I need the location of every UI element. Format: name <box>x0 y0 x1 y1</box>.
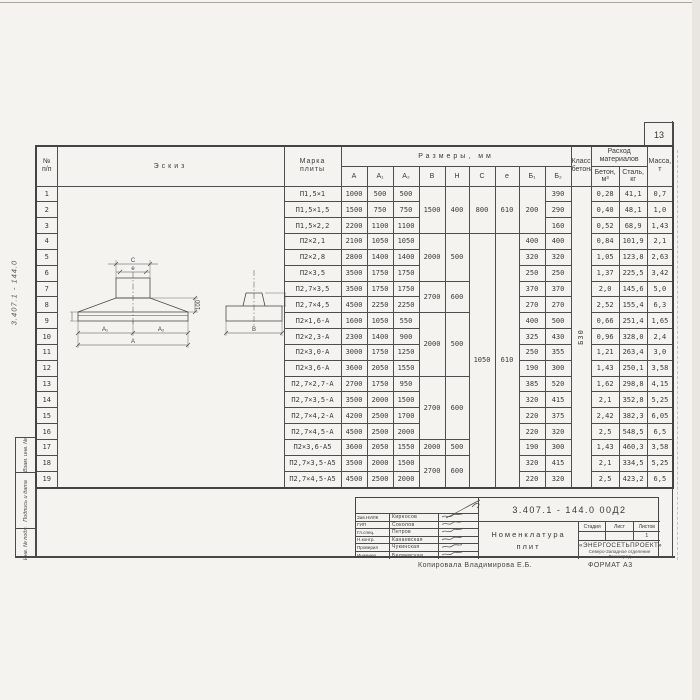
table-cell: 2000 <box>393 424 419 440</box>
table-cell: 500 <box>393 186 419 202</box>
table-cell: 5,0 <box>647 281 673 297</box>
col-header-dims: Размеры, мм <box>341 146 571 166</box>
drawing-sheet: 13 3.407.1 - 144.0 Взам. инв. № Подпись … <box>0 0 700 700</box>
table-cell: 123,8 <box>619 249 647 265</box>
table-cell: 1050 <box>393 234 419 250</box>
table-cell: 2100 <box>341 234 367 250</box>
signer-role: Н.контр. <box>356 537 390 544</box>
col-steel: Сталь, кг <box>619 166 647 186</box>
table-cell: 750 <box>393 202 419 218</box>
table-cell: 2,42 <box>591 408 619 424</box>
table-cell: 1050 <box>367 234 393 250</box>
table-cell: 382,3 <box>619 408 647 424</box>
stage-header-row: Стадия Лист Листов <box>579 522 660 532</box>
table-cell: 3500 <box>341 265 367 281</box>
title-block-right: Стадия Лист Листов 1 «ЭНЕРГОСЕТЬПРОЕКТ» … <box>578 522 660 559</box>
signer-row: Зав.НИЛККирносов <box>356 514 478 522</box>
table-cell: 190 <box>519 440 545 456</box>
table-cell: 18 <box>36 455 57 471</box>
table-cell: 750 <box>367 202 393 218</box>
table-cell: 430 <box>545 329 571 345</box>
table-cell: 1750 <box>367 344 393 360</box>
signature <box>439 529 478 536</box>
table-cell: 2000 <box>367 392 393 408</box>
signature <box>439 544 478 551</box>
col-A1: A₁ <box>367 166 393 186</box>
table-cell: 334,5 <box>619 455 647 471</box>
table-cell: 251,4 <box>619 313 647 329</box>
table-cell: 550 <box>393 313 419 329</box>
table-cell: 1750 <box>393 281 419 297</box>
table-cell: 500 <box>545 313 571 329</box>
table-cell: 320 <box>519 455 545 471</box>
document-number: 3.407.1 - 144.0 00Д2 <box>478 498 660 522</box>
table-cell: 460,3 <box>619 440 647 456</box>
signature <box>439 514 478 521</box>
signer-row: ГИПСоколов <box>356 522 478 530</box>
sheets-label: Листов <box>634 522 660 531</box>
table-cell: 423,2 <box>619 471 647 487</box>
table-cell: П2,7×4,2-А <box>284 408 341 424</box>
dim-label-A2: A₂ <box>158 327 165 333</box>
table-cell: 1,43 <box>591 440 619 456</box>
table-cell: 1250 <box>393 344 419 360</box>
table-cell: 548,5 <box>619 424 647 440</box>
table-cell: П2,7×4,5-А5 <box>284 471 341 487</box>
table-cell: П1,5×1,5 <box>284 202 341 218</box>
table-cell: П2,7×3,5 <box>284 281 341 297</box>
signers-table: Зав.НИЛККирносовГИПСоколовГл.спец.Петров… <box>356 513 478 559</box>
table-cell: 2,1 <box>647 234 673 250</box>
signer-row: ПроверилЧукинская <box>356 544 478 552</box>
sheets-value: 1 <box>634 532 660 540</box>
table-cell: 385 <box>519 376 545 392</box>
table-cell: 500 <box>445 440 469 456</box>
table-cell: 600 <box>445 455 469 487</box>
table-cell: 400 <box>445 186 469 234</box>
table-cell: П2×2,1 <box>284 234 341 250</box>
signer-name: Соколов <box>390 522 439 529</box>
table-cell: 320 <box>519 249 545 265</box>
scan-artifact-line <box>677 150 678 560</box>
table-cell: 1,0 <box>647 202 673 218</box>
table-cell: 3 <box>36 218 57 234</box>
table-cell: 9 <box>36 313 57 329</box>
table-cell: 400 <box>545 234 571 250</box>
dim-label-e: e <box>131 266 135 272</box>
table-cell: 320 <box>545 471 571 487</box>
table-cell: 145,6 <box>619 281 647 297</box>
table-cell: 2,5 <box>591 471 619 487</box>
table-cell: 2050 <box>367 440 393 456</box>
table-cell: 11 <box>36 344 57 360</box>
table-cell: 5,25 <box>647 455 673 471</box>
table-cell: 14 <box>36 392 57 408</box>
col-B1: Б₁ <box>519 166 545 186</box>
table-cell: 6 <box>36 265 57 281</box>
table-cell: 2000 <box>367 455 393 471</box>
table-cell: 0,52 <box>591 218 619 234</box>
table-cell: П2,7×3,5-А <box>284 392 341 408</box>
table-cell: 2250 <box>367 297 393 313</box>
table-cell: 2,63 <box>647 249 673 265</box>
table-cell: 2500 <box>367 424 393 440</box>
table-cell: 355 <box>545 344 571 360</box>
table-cell: 0,96 <box>591 329 619 345</box>
stamp-inv-podl: Инв. № подл. <box>15 528 37 558</box>
table-cell: 352,8 <box>619 392 647 408</box>
format-label: ФОРМАТ А3 <box>588 562 633 569</box>
signer-name: Канаевская <box>390 537 439 544</box>
stage-value <box>579 532 606 540</box>
signature <box>439 552 478 560</box>
col-header-sketch: Эскиз <box>57 146 284 186</box>
table-cell: 250,1 <box>619 360 647 376</box>
table-cell: 500 <box>445 313 469 376</box>
dim-label-A: A <box>131 339 135 345</box>
table-cell: 1400 <box>393 249 419 265</box>
sheet-label: Лист <box>606 522 633 531</box>
table-cell: 415 <box>545 455 571 471</box>
table-cell: 220 <box>519 408 545 424</box>
table-cell: 0,84 <box>591 234 619 250</box>
organization: «ЭНЕРГОСЕТЬПРОЕКТ» Северо-Западное отдел… <box>579 542 660 562</box>
table-cell: 3500 <box>341 392 367 408</box>
col-e: e <box>495 166 519 186</box>
table-cell: 41,1 <box>619 186 647 202</box>
table-cell: 250 <box>545 265 571 281</box>
table-cell: 2,4 <box>647 329 673 345</box>
table-cell: 3500 <box>341 281 367 297</box>
table-cell: 2 <box>36 202 57 218</box>
col-A2: A₂ <box>393 166 419 186</box>
col-A: A <box>341 166 367 186</box>
table-cell: 1,43 <box>647 218 673 234</box>
table-cell: 13 <box>36 376 57 392</box>
col-H: H <box>445 166 469 186</box>
stamp-vzam-inv: Взам. инв. № <box>15 437 37 472</box>
col-B2: Б₂ <box>545 166 571 186</box>
col-header-consumption: Расход материалов <box>591 146 647 166</box>
table-cell: 328,0 <box>619 329 647 345</box>
table-cell: 2700 <box>419 376 445 439</box>
signer-name: Беляевская <box>390 552 439 560</box>
table-cell: 0,66 <box>591 313 619 329</box>
table-cell: 320 <box>519 392 545 408</box>
table-cell: П1,5×2,2 <box>284 218 341 234</box>
table-cell: П2×3,5 <box>284 265 341 281</box>
table-cell: 415 <box>545 392 571 408</box>
table-cell: 2,1 <box>591 392 619 408</box>
table-cell: 3600 <box>341 440 367 456</box>
signer-role: Инженер <box>356 552 390 560</box>
signer-row: ИнженерБеляевская <box>356 552 478 560</box>
col-B: B <box>419 166 445 186</box>
table-cell: 320 <box>545 424 571 440</box>
dim-label-100-left: 100 <box>196 299 202 310</box>
table-cell: 1700 <box>393 408 419 424</box>
table-cell: 220 <box>519 471 545 487</box>
page-edge-line <box>0 2 700 3</box>
table-cell: 2500 <box>367 408 393 424</box>
table-cell: 3600 <box>341 360 367 376</box>
table-cell: 220 <box>519 424 545 440</box>
table-cell: 12 <box>36 360 57 376</box>
table-cell: 270 <box>545 297 571 313</box>
dim-label-A1: A₁ <box>102 327 108 333</box>
table-cell: 3,58 <box>647 440 673 456</box>
table-cell: П2,7×4,5-А <box>284 424 341 440</box>
table-cell: 6,05 <box>647 408 673 424</box>
table-cell: 400 <box>519 234 545 250</box>
table-cell: 2000 <box>419 440 445 456</box>
signer-name: Чукинская <box>390 544 439 551</box>
table-cell: 4500 <box>341 424 367 440</box>
table-cell: П2×1,6-А <box>284 313 341 329</box>
table-cell: 2000 <box>419 234 445 282</box>
table-cell: П2×3,0-А <box>284 344 341 360</box>
table-cell: 1750 <box>367 281 393 297</box>
table-cell: 0,40 <box>591 202 619 218</box>
table-cell: 4500 <box>341 471 367 487</box>
plate-sketch: C e A₁ A₂ A B 100 100 <box>58 256 286 364</box>
table-cell: П2×3,6-А <box>284 360 341 376</box>
table-cell: 2250 <box>393 297 419 313</box>
table-cell: 400 <box>519 313 545 329</box>
table-cell: 500 <box>445 234 469 282</box>
table-cell: 1,65 <box>647 313 673 329</box>
table-cell: 5,25 <box>647 392 673 408</box>
table-cell: 68,9 <box>619 218 647 234</box>
table-cell: 900 <box>393 329 419 345</box>
drawing-title: Номенклатура плит <box>478 522 578 559</box>
table-cell: П2,7×4,5 <box>284 297 341 313</box>
col-header-mass: Масса, т <box>647 146 673 186</box>
table-cell: 1550 <box>393 360 419 376</box>
table-cell: 390 <box>545 186 571 202</box>
table-cell: 1550 <box>393 440 419 456</box>
page-edge-shadow <box>692 0 700 700</box>
table-cell: 1 <box>36 186 57 202</box>
page-number: 13 <box>654 130 664 140</box>
table-cell: 1600 <box>341 313 367 329</box>
table-cell: 1400 <box>367 329 393 345</box>
table-cell: 3,0 <box>647 344 673 360</box>
table-cell: 3000 <box>341 344 367 360</box>
table-cell: 1500 <box>419 186 445 234</box>
table-cell: 250 <box>519 344 545 360</box>
col-header-class: Класс бетона <box>571 146 591 186</box>
table-cell: П1,5×1 <box>284 186 341 202</box>
table-cell: 3500 <box>341 455 367 471</box>
copied-by: Копировала Владимирова Е.Б. <box>418 562 532 569</box>
table-cell: 1050 <box>469 234 495 488</box>
table-cell: 250 <box>519 265 545 281</box>
col-C: C <box>469 166 495 186</box>
table-cell: 325 <box>519 329 545 345</box>
table-cell: 155,4 <box>619 297 647 313</box>
table-cell: 48,1 <box>619 202 647 218</box>
table-cell: 6,3 <box>647 297 673 313</box>
table-cell: 4 <box>36 234 57 250</box>
table-cell: 200 <box>519 186 545 234</box>
table-cell: 1100 <box>393 218 419 234</box>
col-header-mark: Марка плиты <box>284 146 341 186</box>
table-cell: 1,05 <box>591 249 619 265</box>
table-cell: 2700 <box>419 281 445 313</box>
table-cell: Б30 <box>571 186 591 488</box>
signer-role: ГИП <box>356 522 390 529</box>
table-cell: 290 <box>545 202 571 218</box>
dim-label-B: B <box>252 327 256 333</box>
table-cell: 370 <box>545 281 571 297</box>
table-cell: 300 <box>545 440 571 456</box>
signer-role: Проверил <box>356 544 390 551</box>
table-cell: 1,62 <box>591 376 619 392</box>
table-cell: 263,4 <box>619 344 647 360</box>
col-header-num: № п/п <box>36 146 57 186</box>
table-cell: 2,52 <box>591 297 619 313</box>
signature <box>439 522 478 529</box>
table-cell: 17 <box>36 440 57 456</box>
table-cell: 370 <box>519 281 545 297</box>
table-cell: 600 <box>445 281 469 313</box>
table-cell: 800 <box>469 186 495 234</box>
table-cell: 2000 <box>393 471 419 487</box>
table-cell: 610 <box>495 186 519 234</box>
table-cell: 1500 <box>341 202 367 218</box>
table-cell: 1500 <box>393 455 419 471</box>
table-cell: 0,7 <box>647 186 673 202</box>
table-cell: П2×3,6-А5 <box>284 440 341 456</box>
table-cell: П2,7×3,5-А5 <box>284 455 341 471</box>
table-cell: 2300 <box>341 329 367 345</box>
table-cell: 8 <box>36 297 57 313</box>
table-cell: 190 <box>519 360 545 376</box>
title-block: 3.407.1 - 144.0 00Д2 Номенклатура плит С… <box>355 497 659 558</box>
table-cell: 2200 <box>341 218 367 234</box>
table-cell: 3,58 <box>647 360 673 376</box>
table-cell: 2,1 <box>591 455 619 471</box>
table-cell: П2×2,3-А <box>284 329 341 345</box>
table-cell: П2×2,8 <box>284 249 341 265</box>
table-cell: 1750 <box>367 265 393 281</box>
signer-row: Н.контр.Канаевская <box>356 537 478 545</box>
table-cell: 375 <box>545 408 571 424</box>
table-cell: 4500 <box>341 297 367 313</box>
table-cell: 4,15 <box>647 376 673 392</box>
signature <box>439 537 478 544</box>
stamp-podpis-data: Подпись и дата <box>15 472 37 528</box>
table-cell: 2050 <box>367 360 393 376</box>
table-cell: 270 <box>519 297 545 313</box>
table-cell: 950 <box>393 376 419 392</box>
page-number-box: 13 <box>644 122 674 147</box>
table-cell: 160 <box>545 218 571 234</box>
table-cell: 19 <box>36 471 57 487</box>
table-cell: 600 <box>445 376 469 439</box>
table-cell: 2700 <box>341 376 367 392</box>
signer-row: Гл.спец.Петров <box>356 529 478 537</box>
signer-name: Кирносов <box>390 514 439 521</box>
table-cell: 6,5 <box>647 424 673 440</box>
signer-role: Гл.спец. <box>356 529 390 536</box>
side-reference: 3.407.1 - 144.0 <box>10 233 19 353</box>
table-cell: 610 <box>495 234 519 488</box>
sheet-value <box>606 532 633 540</box>
table-cell: 1,21 <box>591 344 619 360</box>
table-cell: 1500 <box>393 392 419 408</box>
table-cell: 298,8 <box>619 376 647 392</box>
table-row: 1П1,5×110005005001500400800610200390Б300… <box>36 186 673 202</box>
table-cell: 2500 <box>367 471 393 487</box>
org-name: «ЭНЕРГОСЕТЬПРОЕКТ» <box>579 542 660 549</box>
table-cell: 5 <box>36 249 57 265</box>
table-cell: П2,7×2,7-А <box>284 376 341 392</box>
table-cell: 1100 <box>367 218 393 234</box>
stage-label: Стадия <box>579 522 606 531</box>
table-cell: 1400 <box>367 249 393 265</box>
table-cell: 1000 <box>341 186 367 202</box>
dim-label-C: C <box>131 258 136 264</box>
table-cell: 300 <box>545 360 571 376</box>
table-cell: 2,0 <box>591 281 619 297</box>
signer-role: Зав.НИЛК <box>356 514 390 521</box>
table-cell: 15 <box>36 408 57 424</box>
signer-name: Петров <box>390 529 439 536</box>
table-cell: 500 <box>367 186 393 202</box>
stage-value-row: 1 <box>579 532 660 541</box>
table-cell: 4200 <box>341 408 367 424</box>
table-cell: 101,9 <box>619 234 647 250</box>
stamp-column: Взам. инв. № Подпись и дата Инв. № подл. <box>15 437 37 558</box>
table-cell: 1050 <box>367 313 393 329</box>
table-cell: 1750 <box>367 376 393 392</box>
table-cell: 320 <box>545 249 571 265</box>
table-cell: 2800 <box>341 249 367 265</box>
table-cell: 3,42 <box>647 265 673 281</box>
col-concrete: Бетон, м³ <box>591 166 619 186</box>
table-cell: 1,37 <box>591 265 619 281</box>
table-cell: 520 <box>545 376 571 392</box>
table-cell: 2000 <box>419 313 445 376</box>
table-cell: 16 <box>36 424 57 440</box>
table-cell: 10 <box>36 329 57 345</box>
table-cell: 2700 <box>419 455 445 487</box>
table-cell: 225,5 <box>619 265 647 281</box>
table-cell: 2,5 <box>591 424 619 440</box>
table-cell: 1750 <box>393 265 419 281</box>
org-city: Ленинград <box>579 554 660 559</box>
table-cell: 0,28 <box>591 186 619 202</box>
table-cell: 7 <box>36 281 57 297</box>
table-cell: 1,43 <box>591 360 619 376</box>
table-cell: 6,5 <box>647 471 673 487</box>
